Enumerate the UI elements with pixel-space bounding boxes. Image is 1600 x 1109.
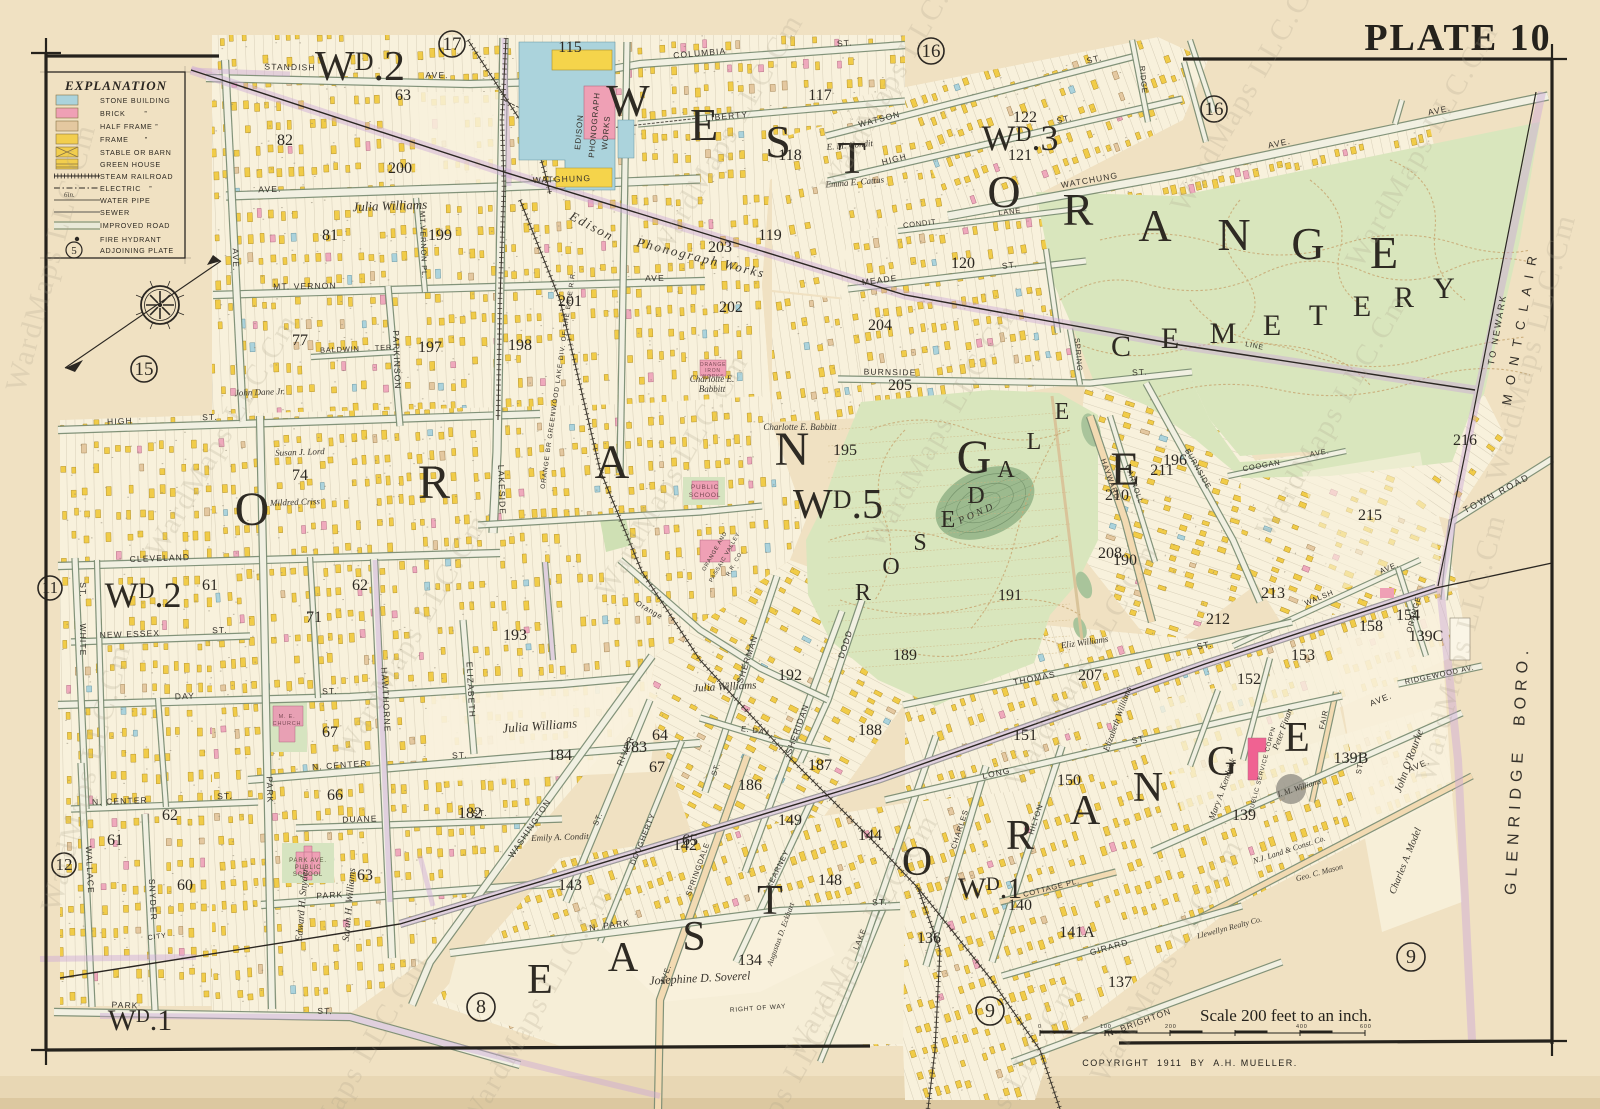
svg-text:ST.: ST. (317, 1006, 333, 1017)
svg-text:63: 63 (357, 867, 373, 884)
svg-text:139B: 139B (1334, 750, 1369, 767)
svg-text:R: R (1063, 184, 1094, 235)
svg-text:S: S (682, 914, 705, 960)
svg-text:ST.: ST. (1001, 259, 1018, 271)
svg-text:187: 187 (808, 757, 832, 774)
svg-text:O: O (235, 483, 270, 536)
svg-text:HIGH: HIGH (107, 416, 133, 427)
svg-text:ST.: ST. (217, 791, 233, 802)
svg-text:IMPROVED ROAD: IMPROVED ROAD (100, 221, 170, 230)
svg-text:Julia Williams: Julia Williams (352, 197, 427, 215)
svg-text:188: 188 (858, 722, 882, 739)
svg-text:202: 202 (719, 299, 743, 316)
svg-text:AVE: AVE (645, 273, 665, 283)
svg-text:STONE BUILDING: STONE BUILDING (100, 96, 170, 105)
svg-text:15: 15 (135, 359, 154, 380)
svg-text:62: 62 (352, 577, 368, 594)
svg-text:HALF FRAME ”: HALF FRAME ” (100, 122, 158, 131)
svg-text:141A: 141A (1059, 924, 1095, 941)
svg-text:9: 9 (1406, 946, 1416, 968)
svg-text:O: O (987, 166, 1020, 217)
svg-text:PARK: PARK (316, 889, 343, 900)
svg-text:PARKINSON: PARKINSON (391, 330, 403, 390)
svg-text:120: 120 (951, 255, 975, 272)
svg-text:191: 191 (998, 587, 1022, 604)
svg-text:62: 62 (162, 807, 178, 824)
svg-text:A: A (595, 436, 630, 489)
svg-text:PARK: PARK (265, 776, 276, 803)
svg-text:74: 74 (292, 467, 308, 484)
svg-text:EXPLANATION: EXPLANATION (64, 78, 167, 93)
svg-text:ST.: ST. (1132, 366, 1148, 377)
svg-text:FRAME ”: FRAME ” (100, 135, 148, 144)
svg-text:M: M (1210, 317, 1237, 350)
svg-text:STEAM RAILROAD: STEAM RAILROAD (100, 172, 173, 181)
svg-text:204: 204 (868, 317, 892, 334)
svg-text:STANDISH: STANDISH (264, 62, 315, 73)
svg-text:61: 61 (202, 577, 218, 594)
svg-text:WATGHUNG: WATGHUNG (533, 173, 592, 185)
svg-text:115: 115 (558, 39, 581, 56)
svg-text:82: 82 (277, 132, 293, 149)
svg-text:150: 150 (1057, 772, 1081, 789)
svg-text:208: 208 (1098, 545, 1122, 562)
svg-text:SCHOOL: SCHOOL (689, 492, 721, 499)
svg-text:N: N (1217, 209, 1250, 260)
svg-text:5: 5 (71, 245, 77, 257)
svg-text:NEW ESSEX: NEW ESSEX (100, 628, 161, 640)
svg-text:17: 17 (443, 34, 462, 55)
svg-text:ST.: ST. (322, 686, 338, 697)
svg-text:148: 148 (818, 872, 842, 889)
svg-text:200: 200 (388, 160, 412, 177)
svg-text:66: 66 (327, 787, 343, 804)
svg-text:198: 198 (508, 337, 532, 354)
svg-text:64: 64 (652, 727, 668, 744)
svg-text:Mildred Criss: Mildred Criss (269, 496, 321, 508)
svg-text:184: 184 (548, 747, 572, 764)
svg-text:T: T (757, 878, 783, 924)
svg-text:139C: 139C (1409, 628, 1444, 645)
svg-text:AVE.: AVE. (258, 184, 281, 195)
svg-text:212: 212 (1206, 611, 1230, 628)
svg-text:N: N (775, 423, 810, 476)
svg-text:A: A (1070, 788, 1101, 834)
svg-text:192: 192 (778, 667, 802, 684)
svg-text:Y: Y (1433, 272, 1455, 305)
svg-text:152: 152 (1237, 671, 1261, 688)
svg-text:FIRE HYDRANT: FIRE HYDRANT (100, 235, 162, 244)
svg-text:AVE.: AVE. (231, 248, 242, 271)
svg-text:Emily A. Condit: Emily A. Condit (530, 831, 589, 843)
svg-text:ST.: ST. (452, 749, 468, 760)
svg-text:213: 213 (1261, 585, 1285, 602)
svg-text:154: 154 (1396, 607, 1420, 624)
svg-text:ST.: ST. (837, 37, 853, 48)
svg-text:E: E (1055, 399, 1070, 425)
svg-text:R: R (418, 456, 450, 509)
svg-text:E: E (1263, 309, 1281, 342)
svg-text:T: T (1309, 299, 1327, 332)
svg-text:ST.: ST. (212, 625, 228, 636)
svg-text:137: 137 (1108, 974, 1132, 991)
svg-text:BALDWIN: BALDWIN (320, 344, 360, 354)
svg-text:199: 199 (428, 227, 452, 244)
svg-text:AVE.: AVE. (425, 70, 448, 80)
svg-text:C: C (1111, 330, 1131, 363)
svg-text:E: E (1284, 715, 1310, 761)
svg-text:183: 183 (623, 739, 647, 756)
svg-text:ADJOINING PLATE: ADJOINING PLATE (100, 246, 174, 255)
svg-text:149: 149 (778, 812, 802, 829)
svg-text:60: 60 (177, 877, 193, 894)
svg-text:186: 186 (738, 777, 762, 794)
svg-text:A: A (997, 457, 1015, 483)
svg-text:PUBLIC: PUBLIC (691, 484, 719, 491)
svg-text:216: 216 (1453, 432, 1477, 449)
svg-text:67: 67 (649, 759, 665, 776)
svg-text:71: 71 (306, 609, 322, 626)
svg-text:DAY: DAY (175, 691, 195, 702)
svg-text:G: G (957, 431, 992, 484)
svg-text:215: 215 (1358, 507, 1382, 524)
svg-text:193: 193 (503, 627, 527, 644)
svg-text:9: 9 (985, 1000, 995, 1022)
svg-text:TER.: TER. (375, 343, 396, 353)
svg-text:E: E (1110, 443, 1139, 496)
svg-text:R: R (855, 580, 871, 606)
svg-text:117: 117 (808, 87, 831, 104)
svg-text:S: S (765, 116, 791, 167)
svg-text:ST.: ST. (78, 582, 88, 598)
svg-text:143: 143 (558, 877, 582, 894)
svg-text:G: G (1291, 218, 1324, 269)
svg-text:153: 153 (1291, 647, 1315, 664)
svg-text:ELECTRIC ”: ELECTRIC ” (100, 184, 152, 193)
svg-text:W: W (606, 75, 650, 126)
svg-text:E: E (941, 507, 956, 533)
svg-text:158: 158 (1359, 618, 1383, 635)
svg-text:O: O (882, 554, 899, 580)
svg-text:211: 211 (1150, 462, 1173, 479)
svg-text:Scale 200 feet to an inch.: Scale 200 feet to an inch. (1200, 1006, 1372, 1025)
svg-text:200: 200 (1165, 1024, 1177, 1030)
svg-text:81: 81 (322, 227, 338, 244)
svg-text:GREEN HOUSE: GREEN HOUSE (100, 160, 161, 169)
svg-text:A: A (1138, 200, 1171, 251)
svg-text:S: S (913, 530, 926, 556)
svg-text:197: 197 (418, 339, 442, 356)
svg-text:BURNSIDE: BURNSIDE (864, 367, 917, 378)
svg-text:61: 61 (107, 832, 123, 849)
svg-text:MT. VERNON: MT. VERNON (273, 280, 337, 291)
svg-text:LAKESIDE: LAKESIDE (496, 465, 508, 516)
svg-text:CHURCH: CHURCH (273, 721, 302, 727)
svg-text:600: 600 (1360, 1024, 1372, 1030)
svg-text:144: 144 (858, 827, 882, 844)
svg-text:182: 182 (458, 805, 482, 822)
svg-text:N. CENTER: N. CENTER (92, 795, 148, 807)
svg-text:PARK AVE.: PARK AVE. (289, 858, 327, 864)
svg-text:DUANE: DUANE (342, 813, 378, 824)
svg-text:WATER PIPE: WATER PIPE (100, 196, 151, 205)
svg-text:189: 189 (893, 647, 917, 664)
svg-text:A: A (608, 935, 639, 981)
svg-text:Susan J. Lord: Susan J. Lord (275, 446, 325, 458)
svg-text:M. E.: M. E. (279, 714, 296, 720)
svg-text:BRICK ”: BRICK ” (100, 109, 147, 118)
svg-text:E: E (1161, 322, 1179, 355)
svg-text:G: G (1207, 739, 1237, 785)
svg-text:205: 205 (888, 377, 912, 394)
svg-text:PUBLIC: PUBLIC (295, 865, 321, 871)
svg-text:195: 195 (833, 442, 857, 459)
svg-text:N: N (1133, 765, 1163, 811)
svg-text:SCHOOL: SCHOOL (293, 872, 323, 878)
svg-text:11: 11 (42, 578, 58, 597)
svg-text:119: 119 (758, 227, 781, 244)
svg-text:136: 136 (917, 930, 941, 947)
svg-text:L: L (1027, 429, 1042, 455)
svg-text:134: 134 (738, 952, 762, 969)
svg-text:8: 8 (476, 996, 486, 1018)
svg-text:STABLE OR BARN: STABLE OR BARN (100, 148, 172, 157)
svg-text:WHITE: WHITE (78, 624, 88, 657)
svg-text:R: R (1006, 813, 1034, 859)
svg-text:SEWER: SEWER (100, 208, 130, 217)
svg-text:142: 142 (673, 837, 697, 854)
svg-text:400: 400 (1296, 1024, 1308, 1030)
